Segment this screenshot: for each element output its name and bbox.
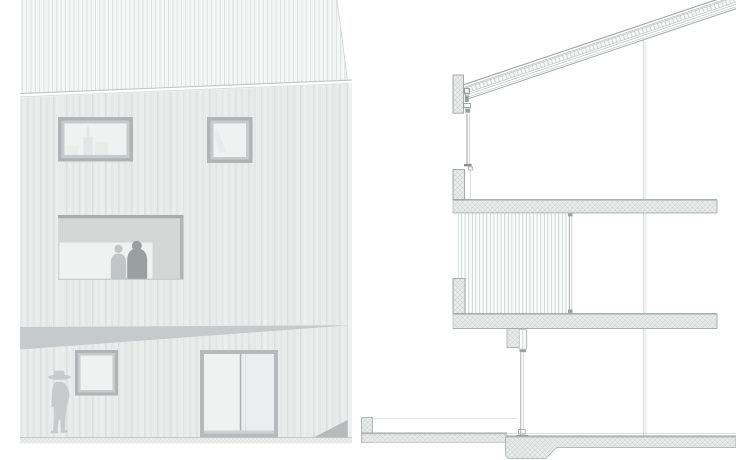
spandrel-wall-cut xyxy=(453,170,465,200)
eaves-wall-cut xyxy=(453,75,464,113)
ground-slab xyxy=(506,433,736,458)
section-roof-assembly xyxy=(462,0,736,100)
figure-head xyxy=(114,245,122,253)
window-lower-small xyxy=(75,350,118,396)
section-view xyxy=(362,0,736,459)
loggia-parapet-cut xyxy=(453,279,465,314)
edge-beam-cut xyxy=(507,329,520,348)
glazing-sill-mark xyxy=(568,310,573,313)
window-upper-left xyxy=(58,117,133,162)
door-threshold xyxy=(204,431,274,434)
elevation-wall-corner-strip xyxy=(348,83,352,438)
loggia-window xyxy=(58,215,184,279)
loggia-frame-top xyxy=(58,215,184,218)
hat-crown xyxy=(54,371,65,378)
roller-blind-box xyxy=(519,330,527,350)
drawing-canvas xyxy=(0,0,736,460)
ground-floor-glazing xyxy=(517,352,529,435)
terrace-slab-hatch xyxy=(362,434,507,443)
terrace-slab xyxy=(362,418,518,443)
head-profile-solid xyxy=(465,109,470,113)
slab-hatch xyxy=(453,201,717,213)
roller-box-bottom xyxy=(520,350,526,353)
glazing-head-mark xyxy=(568,213,573,216)
glass-reflection-blob xyxy=(95,142,108,155)
window-glazing xyxy=(81,356,113,391)
ground-strip xyxy=(20,438,352,443)
elevation-view xyxy=(20,0,352,443)
roof-batten-band xyxy=(463,0,736,93)
figure-body xyxy=(111,253,126,279)
interior-wall-line xyxy=(644,41,646,437)
head-profile xyxy=(465,96,469,103)
floor-slab-middle xyxy=(453,314,717,329)
glass-reflection-blob xyxy=(67,146,78,155)
roof-board-line xyxy=(466,4,736,97)
head-profile-frame xyxy=(464,104,471,108)
loggia-frame-right xyxy=(180,218,184,279)
floor-slab-upper xyxy=(453,200,717,213)
window-upper-right xyxy=(207,117,253,163)
ground-slab-hatch xyxy=(506,437,736,459)
section-upper-window xyxy=(464,114,473,171)
elevation-roof xyxy=(22,0,348,93)
architectural-drawing xyxy=(0,0,736,460)
door-panel-left-glazing xyxy=(204,354,241,431)
loggia-slat-screen xyxy=(459,213,570,313)
sliding-glass-door xyxy=(200,350,278,438)
slab-hatch xyxy=(453,315,717,329)
sill-profile xyxy=(464,164,472,167)
figure-body xyxy=(127,248,147,279)
roof-membrane-line xyxy=(465,2,736,95)
